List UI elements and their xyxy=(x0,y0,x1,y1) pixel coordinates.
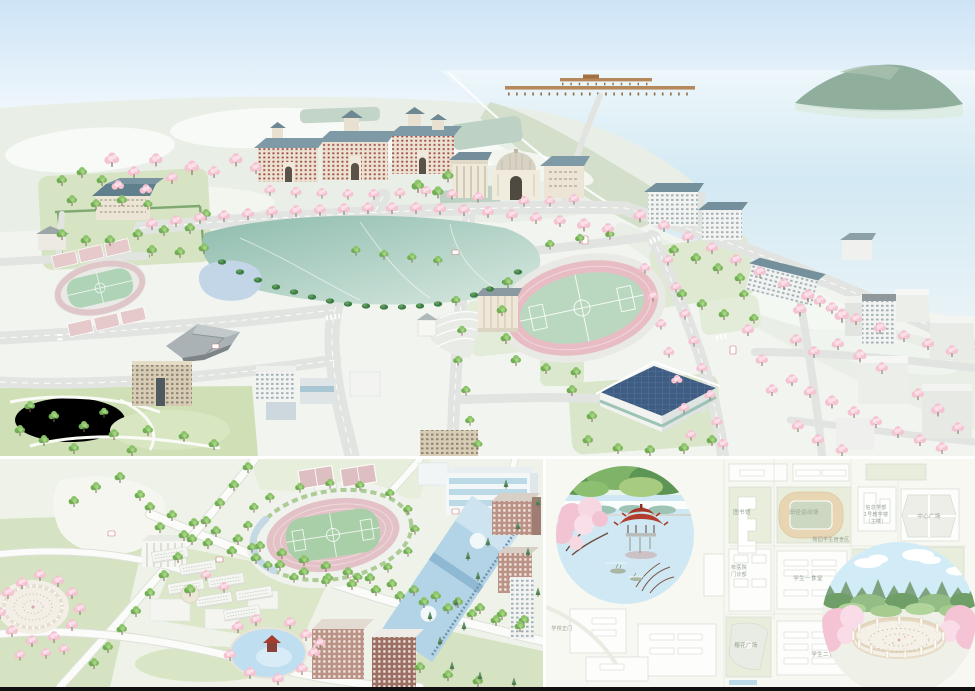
pond-strip xyxy=(729,680,757,685)
south-map-canvas xyxy=(0,459,543,687)
south-campus-aerial-map xyxy=(0,459,543,687)
label-clinic-1: 校医院 xyxy=(731,564,747,571)
label-clinic-2: 门诊部 xyxy=(731,571,747,578)
label-dorm-area: 樱园学生宿舍区 xyxy=(812,536,849,543)
label-athletic-field: 田径运动场 xyxy=(789,508,819,516)
label-dept-1: 信息学部 xyxy=(865,504,886,511)
label-center-plaza: 中心广场 xyxy=(917,512,941,520)
label-dept-3: （主楼） xyxy=(865,518,886,525)
label-library: 图书馆 xyxy=(733,508,751,516)
minimap-canvas: 图书馆 田径运动场 校医院 门诊部 樱花广场 学生一食堂 学生二食堂 信息学部 … xyxy=(546,459,975,687)
campus-plan-minimap: 图书馆 田径运动场 校医院 门诊部 樱花广场 学生一食堂 学生二食堂 信息学部 … xyxy=(546,459,975,687)
label-sakura-plaza: 樱花广场 xyxy=(734,641,758,649)
pavilion-pond xyxy=(230,628,306,678)
blue-pond xyxy=(199,261,262,301)
old-library-dome xyxy=(449,149,590,200)
label-main-gate: 学校正门 xyxy=(551,625,572,632)
campus-map-poster: 图书馆 田径运动场 校医院 门诊部 樱花广场 学生一食堂 学生二食堂 信息学部 … xyxy=(0,0,975,691)
bottom-black-bar xyxy=(0,687,975,691)
campus-aerial-map xyxy=(0,0,975,456)
library-footprint xyxy=(738,497,756,553)
label-canteen1: 学生一食堂 xyxy=(793,574,823,582)
label-dept-2: 1号教学楼 xyxy=(864,511,889,518)
aerial-map-canvas xyxy=(0,0,975,456)
